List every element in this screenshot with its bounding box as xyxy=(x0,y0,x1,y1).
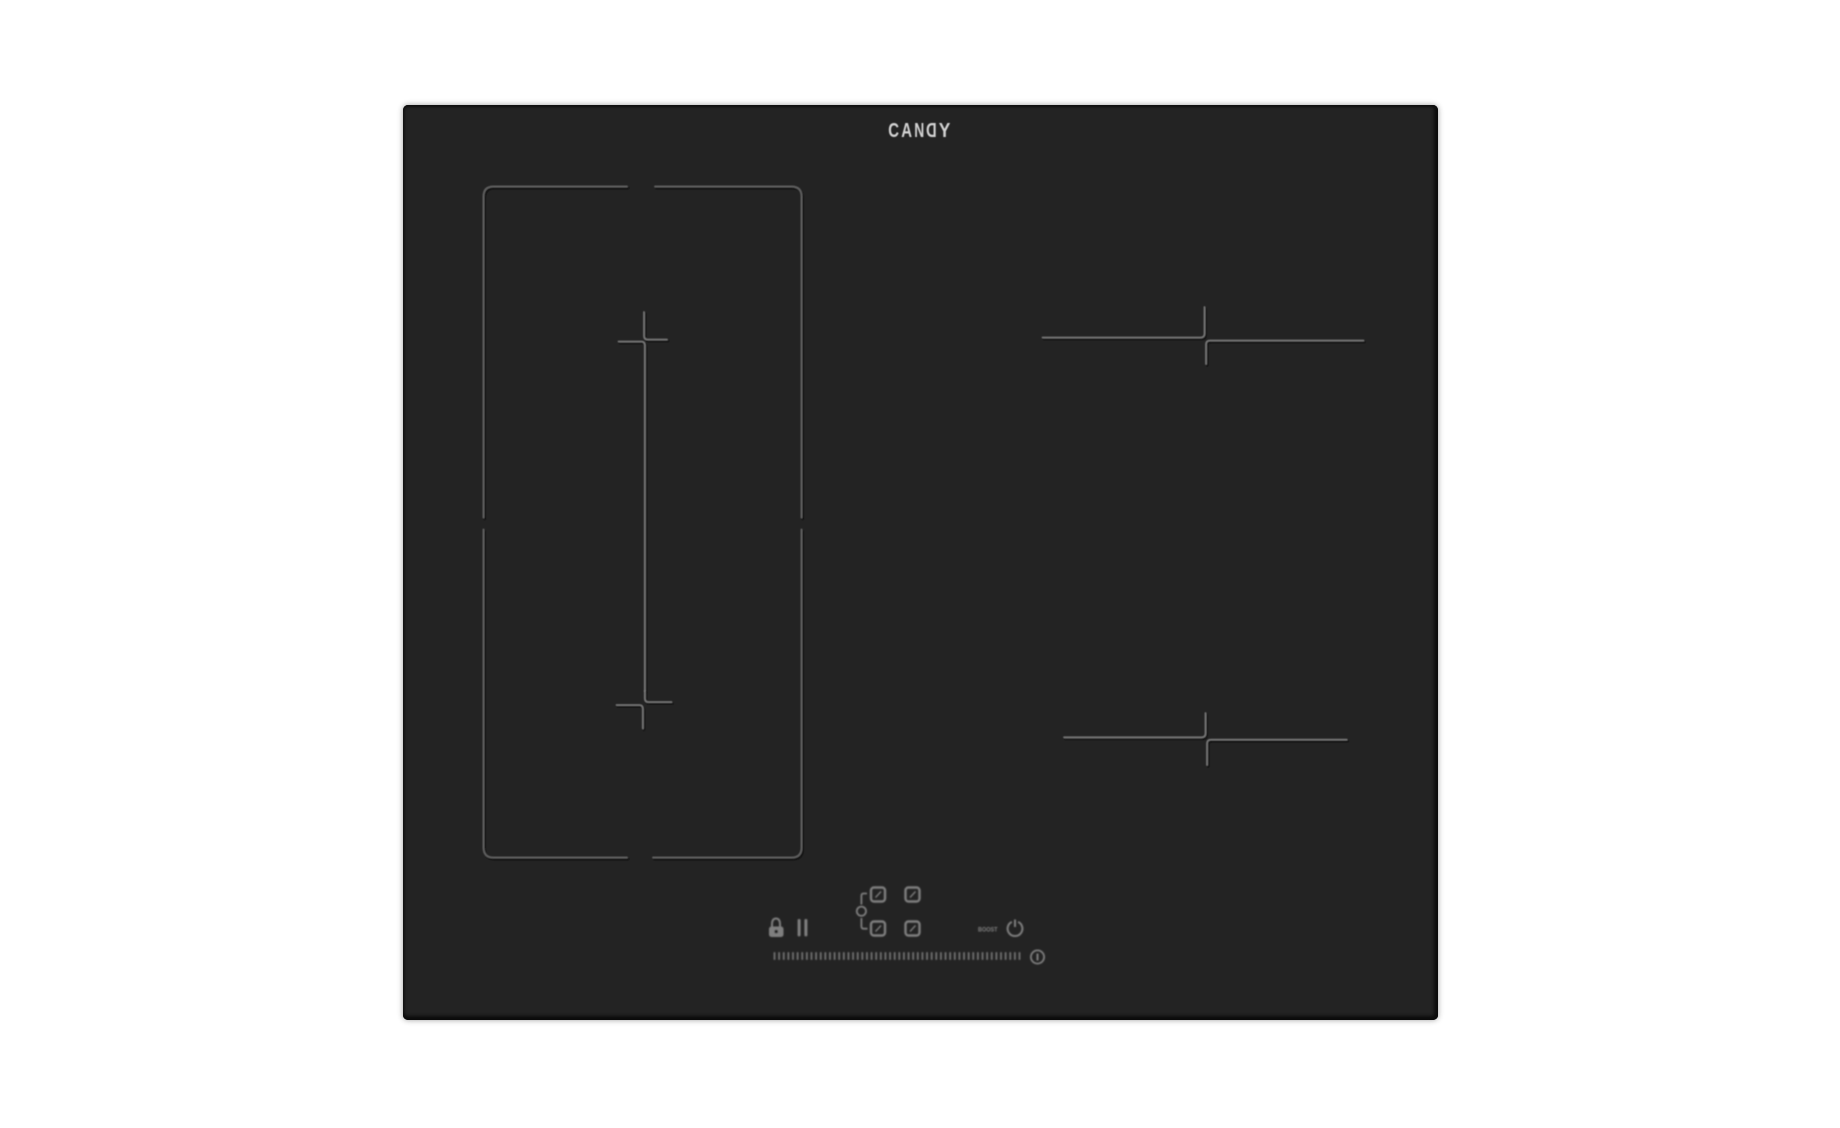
svg-text:Y: Y xyxy=(939,119,951,142)
svg-text:N: N xyxy=(914,119,924,142)
svg-text:A: A xyxy=(901,119,912,142)
svg-text:BOOST: BOOST xyxy=(978,927,998,934)
svg-text:C: C xyxy=(888,119,899,142)
svg-text:D: D xyxy=(926,119,937,142)
